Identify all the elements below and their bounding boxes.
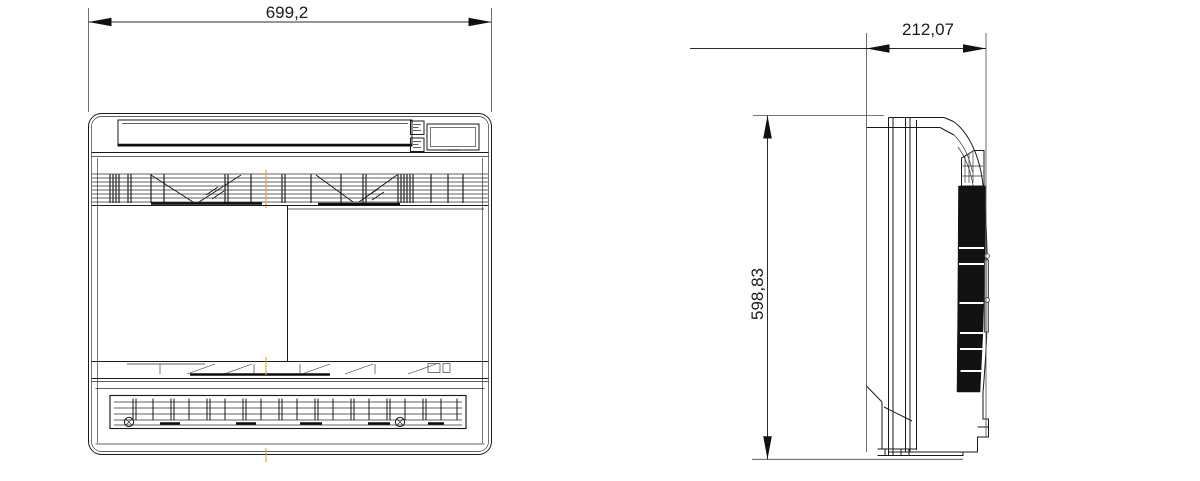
- side-depth-value: 212,07: [902, 20, 954, 39]
- arrowhead-left-icon: [89, 18, 112, 27]
- arrowhead-right-icon: [469, 18, 492, 27]
- side-depth-dimension: 212,07: [690, 20, 986, 452]
- side-base-edges: [889, 452, 964, 456]
- front-side-seams: [98, 158, 483, 443]
- hinge-icon: [985, 254, 990, 259]
- arrowhead-left-icon: [867, 44, 890, 53]
- bottom-step-profile: [963, 392, 989, 456]
- bottom-intake-grille: [110, 396, 466, 429]
- open-flap-edge: [985, 260, 989, 332]
- arrowhead-bottom-icon: [763, 436, 772, 459]
- front-body-inner-contour: [92, 117, 489, 452]
- upper-louver-grille: [92, 170, 488, 208]
- side-height-dimension: 598,83: [748, 116, 963, 460]
- orthographic-views: 699,2 212,07: [0, 0, 1200, 481]
- extension-lines: [752, 116, 963, 460]
- display-window-inner: [431, 128, 476, 147]
- side-view: [867, 118, 990, 456]
- extension-lines: [89, 8, 492, 112]
- top-outlet-flap: [118, 120, 412, 146]
- front-width-dimension: 699,2: [89, 3, 492, 112]
- front-view: [89, 114, 492, 463]
- arrowhead-top-icon: [763, 116, 772, 139]
- side-louver-assembly: [957, 151, 989, 393]
- drain-pipe-detail: [867, 386, 917, 456]
- front-width-value: 699,2: [266, 3, 309, 22]
- control-panel: [411, 121, 480, 152]
- technical-drawing-canvas: 699,2 212,07: [0, 0, 1200, 481]
- lower-outlet-slats: [92, 357, 489, 389]
- front-body-outline: [89, 114, 492, 455]
- display-window: [427, 124, 479, 150]
- side-height-value: 598,83: [748, 268, 767, 320]
- button-glyph-icon: [413, 125, 421, 131]
- arrowhead-right-icon: [963, 44, 986, 53]
- button-glyph-icon: [413, 142, 421, 148]
- back-panel-lines: [889, 118, 917, 456]
- hinge-icon: [985, 298, 990, 303]
